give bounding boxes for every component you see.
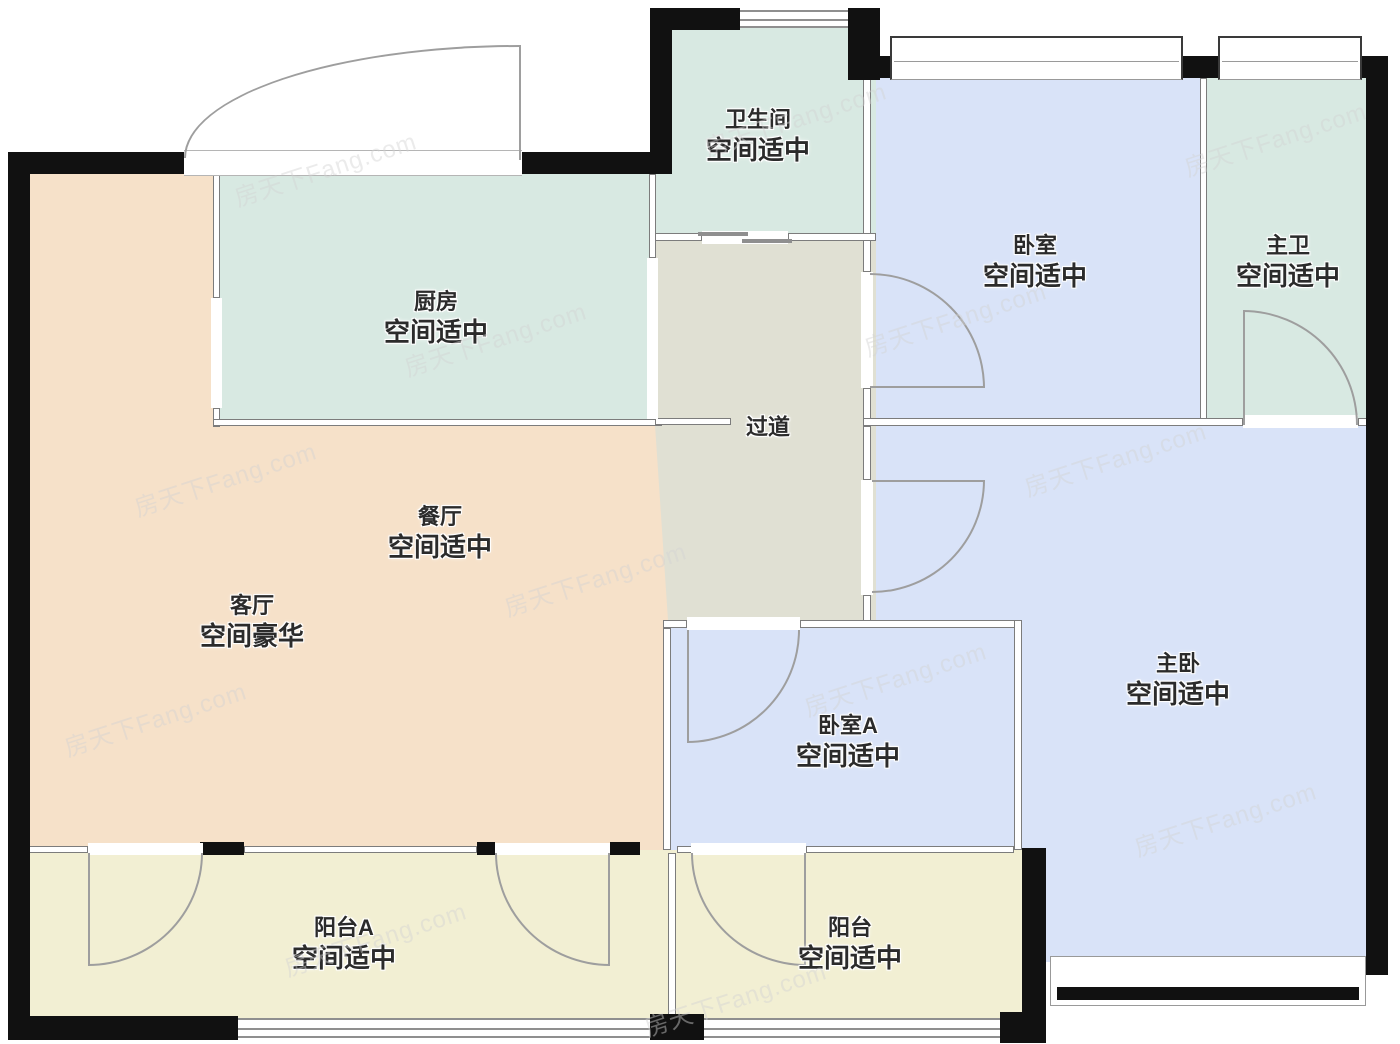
- wall: [1014, 620, 1022, 850]
- door-leaf: [88, 853, 90, 966]
- wall: [610, 842, 640, 855]
- wall: [800, 620, 1022, 628]
- wall: [1366, 56, 1388, 975]
- door-leaf: [608, 853, 610, 966]
- sliding-door: [698, 232, 748, 236]
- window-balcony: [704, 1018, 1000, 1038]
- door-leaf: [872, 480, 985, 482]
- wall: [213, 170, 220, 298]
- wall: [863, 78, 871, 240]
- window-balcony-a: [238, 1018, 650, 1038]
- wall: [650, 8, 672, 174]
- door-leaf: [1243, 310, 1245, 425]
- door-leaf: [687, 630, 689, 743]
- wall: [663, 628, 671, 850]
- wall: [20, 846, 88, 853]
- room-label-kitchen: 厨房空间适中: [384, 288, 488, 348]
- wall: [649, 174, 656, 258]
- wall: [655, 418, 731, 425]
- wall: [8, 152, 184, 174]
- room-label-bathroom: 卫生间空间适中: [706, 106, 810, 166]
- floorplan: 卫生间空间适中 卧室空间适中 主卫空间适中 厨房空间适中 过道 餐厅空间适中 客…: [0, 0, 1400, 1044]
- wall: [8, 152, 30, 1040]
- bay-window-master-bedroom: [1050, 956, 1366, 1006]
- wall: [650, 1014, 704, 1040]
- room-label-bedroom-a: 卧室A空间适中: [796, 712, 900, 772]
- room-label-dining: 餐厅空间适中: [388, 503, 492, 563]
- wall: [806, 846, 1014, 853]
- door-opening-bedroom-a: [687, 617, 800, 630]
- room-label-balcony: 阳台空间适中: [798, 914, 902, 974]
- door-opening-kitchen-right: [647, 258, 658, 419]
- wall: [655, 233, 702, 241]
- sliding-door: [742, 239, 792, 243]
- room-master-bedroom-lower: [1022, 850, 1366, 962]
- door-arc-entry: [184, 45, 520, 158]
- door-opening-kitchen-left: [211, 298, 222, 408]
- room-label-living: 客厅空间豪华: [200, 592, 304, 652]
- wall: [522, 152, 655, 174]
- wall: [213, 419, 662, 426]
- room-label-master-bedroom: 主卧空间适中: [1126, 650, 1230, 710]
- room-label-master-bath: 主卫空间适中: [1236, 232, 1340, 292]
- wall: [1022, 848, 1046, 1020]
- wall: [200, 842, 244, 855]
- wall: [244, 846, 477, 853]
- wall: [668, 853, 676, 1016]
- room-label-hallway: 过道: [746, 413, 790, 441]
- bay-window-bedroom: [890, 36, 1183, 80]
- wall: [863, 240, 871, 272]
- wall: [8, 1016, 238, 1040]
- door-leaf: [519, 45, 521, 160]
- wall: [650, 8, 740, 30]
- bay-window-master-bath: [1218, 36, 1362, 80]
- door-leaf: [870, 386, 985, 388]
- room-label-balcony-a: 阳台A空间适中: [292, 914, 396, 974]
- wall: [663, 620, 687, 628]
- room-label-bedroom: 卧室空间适中: [983, 232, 1087, 292]
- window-bathroom: [737, 10, 848, 28]
- wall: [863, 418, 1243, 426]
- wall: [863, 426, 871, 480]
- wall: [477, 842, 495, 855]
- wall: [1200, 78, 1207, 425]
